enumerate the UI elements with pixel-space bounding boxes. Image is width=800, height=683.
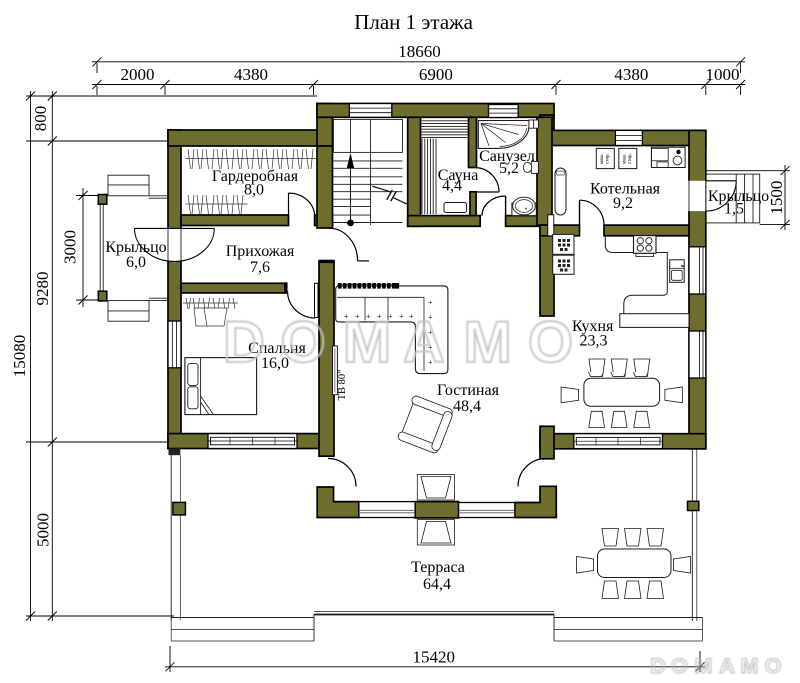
- svg-text:64,4: 64,4: [423, 576, 451, 593]
- svg-text:O: O: [280, 310, 325, 375]
- svg-text:A: A: [403, 310, 445, 375]
- svg-text:M: M: [741, 654, 759, 678]
- svg-text:1000: 1000: [706, 65, 740, 84]
- svg-text:15080: 15080: [10, 335, 29, 378]
- svg-text:23,3: 23,3: [580, 333, 608, 350]
- svg-text:4380: 4380: [614, 65, 648, 84]
- svg-text:A: A: [719, 654, 735, 678]
- svg-text:маш.: маш.: [599, 153, 604, 164]
- svg-text:7,6: 7,6: [250, 259, 270, 276]
- svg-text:1,5: 1,5: [724, 201, 744, 218]
- svg-text:9280: 9280: [33, 272, 52, 306]
- svg-text:4380: 4380: [234, 65, 268, 84]
- svg-text:M: M: [343, 310, 391, 375]
- svg-text:План 1 этажа: План 1 этажа: [354, 10, 473, 34]
- svg-text:O: O: [671, 654, 688, 678]
- svg-text:O: O: [528, 310, 573, 375]
- svg-text:D: D: [650, 654, 666, 678]
- svg-text:6900: 6900: [419, 65, 453, 84]
- svg-text:800: 800: [31, 106, 50, 132]
- svg-text:стир.: стир.: [605, 153, 610, 164]
- svg-text:4,4: 4,4: [442, 178, 462, 195]
- svg-text:15420: 15420: [413, 648, 456, 667]
- svg-text:5,2: 5,2: [499, 160, 519, 177]
- svg-text:3000: 3000: [61, 230, 80, 264]
- svg-text:Прихожая: Прихожая: [226, 243, 295, 260]
- svg-text:5000: 5000: [34, 513, 53, 547]
- svg-text:Гостиная: Гостиная: [437, 382, 500, 399]
- svg-text:M: M: [463, 310, 511, 375]
- svg-text:8,0: 8,0: [244, 182, 264, 199]
- svg-text:9,2: 9,2: [613, 195, 633, 212]
- svg-text:Терраса: Терраса: [411, 559, 465, 576]
- svg-text:18660: 18660: [398, 42, 441, 61]
- svg-text:6,0: 6,0: [126, 254, 146, 271]
- svg-text:M: M: [695, 654, 713, 678]
- svg-text:1500: 1500: [767, 181, 786, 215]
- svg-text:2000: 2000: [121, 65, 155, 84]
- svg-text:маш.: маш.: [622, 153, 627, 164]
- svg-text:стир.: стир.: [627, 153, 632, 164]
- svg-text:+: +: [428, 298, 433, 307]
- svg-text:48,4: 48,4: [453, 398, 481, 415]
- svg-text:O: O: [765, 654, 782, 678]
- svg-text:D: D: [223, 310, 265, 375]
